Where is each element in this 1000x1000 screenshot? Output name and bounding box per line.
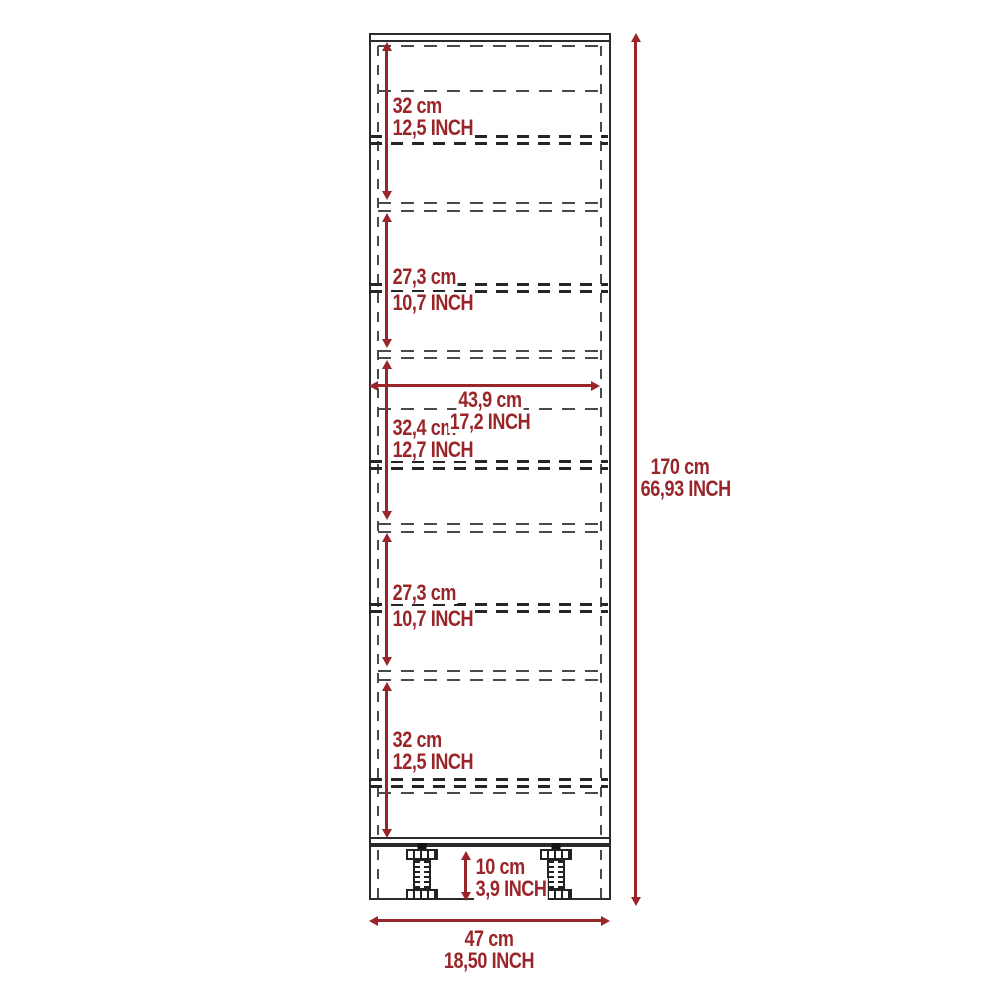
overall-height-label: 170 cm 66,93 INCH [639, 456, 721, 500]
overall-height-inch: 66,93 INCH [639, 478, 732, 500]
cabinet-dimension-diagram: 32 cm 12,5 INCH 27,3 cm 10,7 INCH 32,4 c… [0, 0, 1000, 1000]
shelf-line [378, 679, 600, 681]
section-1-height-arrow [385, 51, 388, 191]
section-3-inch: 12,7 INCH [391, 439, 475, 461]
section-5-height-arrow [385, 691, 388, 829]
leg-shaft [413, 859, 431, 890]
shelf-line [378, 350, 600, 352]
overall-height-cm: 170 cm [649, 456, 711, 478]
shelf-line [378, 202, 600, 204]
overall-width-cm: 47 cm [463, 928, 515, 950]
shelf-line [378, 523, 600, 525]
shelf-line [378, 670, 600, 672]
base-hidden-line-left [377, 848, 379, 898]
section-1-cm: 32 cm [391, 95, 443, 117]
section-1-label: 32 cm 12,5 INCH [391, 95, 475, 139]
section-4-label: 27,3 cm 10,7 INCH [391, 582, 475, 630]
interior-width-label: 43,9 cm 17,2 INCH [442, 389, 537, 433]
base-height-cm: 10 cm [474, 856, 526, 878]
shelf-line [378, 210, 600, 212]
section-1-inch: 12,5 INCH [391, 117, 475, 139]
overall-height-arrow [634, 42, 637, 897]
section-2-label: 27,3 cm 10,7 INCH [391, 266, 475, 314]
section-4-inch: 10,7 INCH [391, 608, 475, 630]
base-height-inch: 3,9 INCH [474, 878, 548, 900]
section-3-height-arrow [385, 369, 388, 511]
leg-shaft [547, 859, 565, 890]
cabinet-top-board [369, 40, 611, 42]
section-4-cm: 27,3 cm [391, 582, 458, 604]
base-height-arrow [464, 860, 467, 892]
shelf-line-heavy [370, 778, 608, 788]
overall-width-inch: 18,50 INCH [442, 950, 535, 972]
interior-width-inch: 17,2 INCH [448, 411, 532, 433]
leg-left [406, 843, 438, 901]
shelf-line [378, 531, 600, 533]
door-outline-left [377, 45, 379, 835]
base-hidden-line-right [600, 848, 602, 898]
section-5-cm: 32 cm [391, 729, 443, 751]
section-5-label: 32 cm 12,5 INCH [391, 729, 475, 773]
base-height-label: 10 cm 3,9 INCH [474, 856, 548, 900]
section-2-cm: 27,3 cm [391, 266, 458, 288]
interior-width-cm: 43,9 cm [457, 389, 524, 411]
section-2-height-arrow [385, 222, 388, 339]
leg-foot [406, 889, 438, 900]
door-outline-top [378, 45, 600, 47]
overall-width-label: 47 cm 18,50 INCH [440, 928, 538, 972]
section-2-inch: 10,7 INCH [391, 292, 475, 314]
door-outline-right [600, 45, 602, 835]
shelf-line [378, 90, 600, 92]
section-4-height-arrow [385, 542, 388, 657]
section-5-inch: 12,5 INCH [391, 751, 475, 773]
cabinet-bottom-board [369, 837, 611, 839]
overall-width-arrow [378, 919, 601, 922]
shelf-line [378, 357, 600, 359]
shelf-line [378, 792, 600, 794]
